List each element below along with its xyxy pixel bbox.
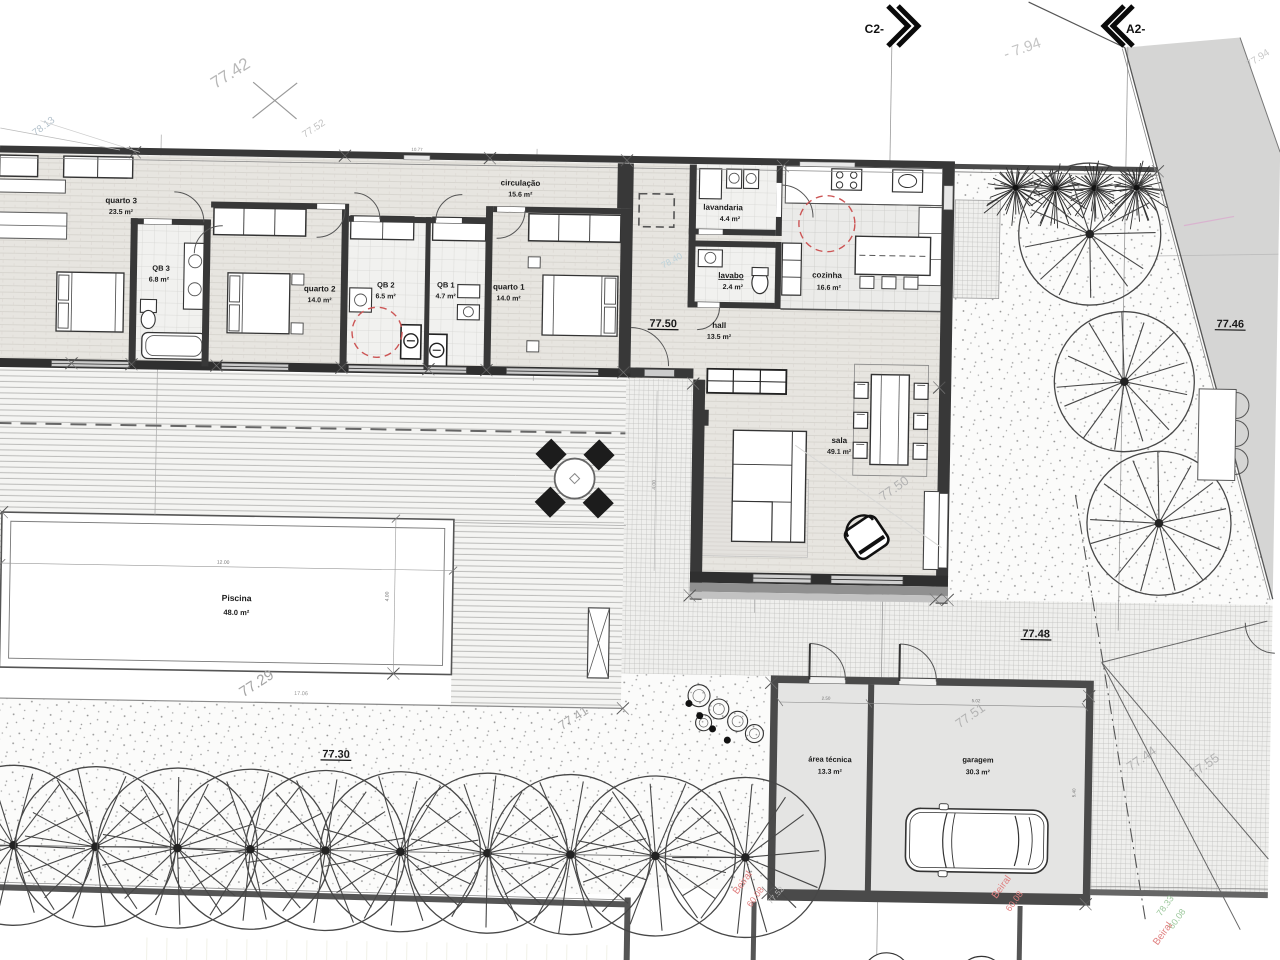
svg-text:77.30: 77.30 (322, 748, 350, 760)
svg-text:área técnica: área técnica (808, 754, 852, 764)
svg-text:lavandaria: lavandaria (703, 203, 743, 213)
svg-text:quarto 2: quarto 2 (304, 284, 336, 294)
svg-text:14.0 m²: 14.0 m² (307, 297, 332, 304)
svg-text:2.50: 2.50 (822, 696, 831, 701)
svg-text:hall: hall (712, 321, 726, 330)
svg-text:77.50: 77.50 (649, 318, 677, 330)
svg-text:4.00: 4.00 (651, 480, 657, 490)
svg-text:4.4 m²: 4.4 m² (720, 216, 741, 223)
svg-text:garagem: garagem (962, 755, 994, 765)
svg-text:77.46: 77.46 (1216, 318, 1244, 330)
svg-text:12.00: 12.00 (217, 560, 230, 566)
svg-text:23.5 m²: 23.5 m² (109, 209, 134, 216)
svg-text:A2-: A2- (1126, 22, 1145, 36)
svg-text:C2-: C2- (865, 22, 884, 36)
svg-text:lavabo: lavabo (718, 271, 744, 280)
svg-text:4.00: 4.00 (385, 591, 391, 601)
svg-text:QB 1: QB 1 (437, 280, 455, 289)
svg-text:4.7 m²: 4.7 m² (435, 293, 456, 300)
svg-text:14.0 m²: 14.0 m² (496, 295, 521, 302)
svg-text:30.3 m²: 30.3 m² (966, 769, 991, 776)
svg-text:6.8 m²: 6.8 m² (149, 276, 170, 283)
svg-text:48.0 m²: 48.0 m² (223, 608, 249, 617)
svg-text:sala: sala (831, 436, 847, 445)
svg-text:10.77: 10.77 (411, 147, 423, 152)
svg-text:cozinha: cozinha (812, 270, 842, 280)
svg-text:77.48: 77.48 (1022, 628, 1050, 640)
svg-text:2.4 m²: 2.4 m² (723, 284, 744, 291)
svg-text:QB 3: QB 3 (152, 264, 170, 273)
svg-text:quarto 1: quarto 1 (493, 282, 525, 292)
svg-text:15.6 m²: 15.6 m² (508, 191, 533, 198)
svg-text:5.40: 5.40 (1071, 788, 1076, 797)
svg-text:16.6 m²: 16.6 m² (817, 285, 842, 292)
svg-text:13.3 m²: 13.3 m² (818, 769, 843, 776)
svg-text:Piscina: Piscina (222, 593, 252, 603)
svg-text:6.5 m²: 6.5 m² (375, 293, 396, 300)
svg-text:49.1 m²: 49.1 m² (827, 449, 852, 456)
svg-text:13.5 m²: 13.5 m² (707, 334, 732, 341)
svg-text:QB 2: QB 2 (377, 280, 395, 289)
svg-text:17.06: 17.06 (294, 691, 308, 697)
svg-text:circulação: circulação (501, 178, 541, 188)
svg-text:quarto 3: quarto 3 (105, 196, 137, 206)
